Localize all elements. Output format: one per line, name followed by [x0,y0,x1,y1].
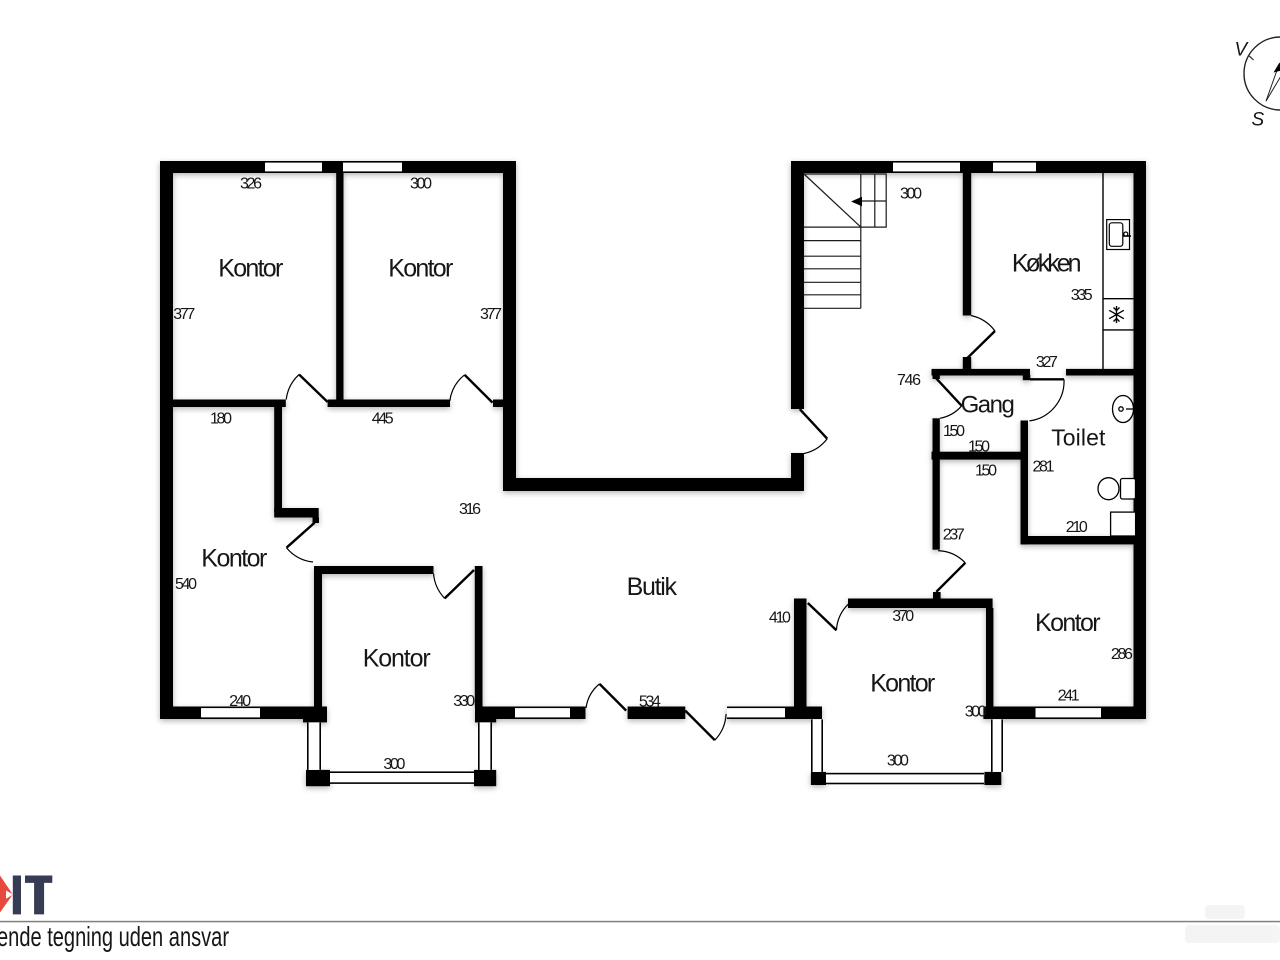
svg-text:300: 300 [383,756,405,773]
svg-text:150: 150 [975,463,997,480]
svg-text:Gang: Gang [961,392,1015,419]
svg-text:ende tegning uden ansvar: ende tegning uden ansvar [0,921,229,952]
svg-text:300: 300 [410,175,432,192]
svg-text:Butik: Butik [627,573,678,601]
svg-text:286: 286 [1111,646,1133,663]
svg-text:540: 540 [175,576,197,593]
svg-text:S: S [1252,110,1265,131]
svg-text:237: 237 [943,526,965,543]
svg-text:Kontor: Kontor [1035,609,1101,637]
svg-text:180: 180 [210,410,232,427]
svg-text:300: 300 [900,186,922,203]
svg-text:316: 316 [459,501,481,518]
svg-text:Kontor: Kontor [218,255,283,283]
svg-text:330: 330 [453,693,475,710]
svg-text:534: 534 [639,693,661,710]
svg-text:240: 240 [229,693,251,710]
svg-text:370: 370 [892,608,914,625]
svg-text:Kontor: Kontor [363,645,431,673]
svg-text:Kontor: Kontor [201,545,267,573]
svg-text:746: 746 [897,372,921,389]
svg-text:150: 150 [968,439,990,456]
svg-text:Kontor: Kontor [870,670,935,698]
svg-text:150: 150 [943,423,965,440]
svg-text:335: 335 [1071,287,1093,304]
svg-text:Kontor: Kontor [388,255,453,283]
svg-text:300: 300 [887,752,909,769]
svg-text:Køkken: Køkken [1012,250,1082,278]
svg-text:Toilet: Toilet [1051,424,1106,450]
svg-text:281: 281 [1033,459,1055,476]
svg-text:210: 210 [1066,519,1088,536]
svg-text:300: 300 [965,704,987,721]
svg-text:377: 377 [480,306,502,323]
svg-text:377: 377 [173,306,195,323]
svg-text:327: 327 [1036,354,1058,371]
svg-text:241: 241 [1058,688,1080,705]
svg-text:410: 410 [769,610,791,627]
svg-text:445: 445 [372,410,394,427]
svg-text:326: 326 [240,175,262,192]
